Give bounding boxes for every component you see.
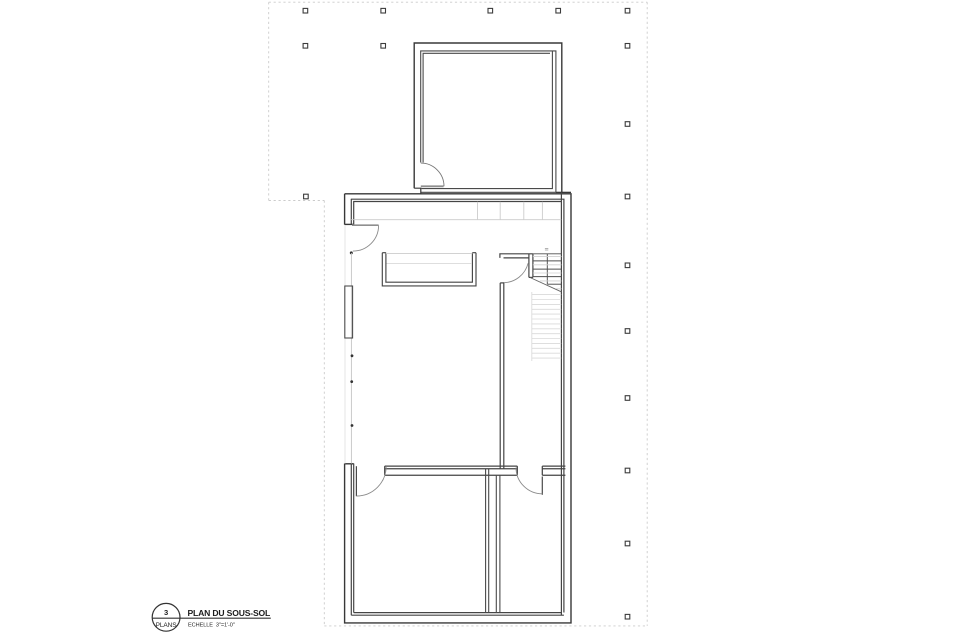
- svg-text:PLANS: PLANS: [156, 622, 178, 629]
- svg-text:PLAN DU SOUS-SOL: PLAN DU SOUS-SOL: [188, 608, 271, 618]
- svg-text:ECHELLE 3"=1'-0": ECHELLE 3"=1'-0": [188, 623, 235, 629]
- svg-text:3: 3: [164, 608, 168, 617]
